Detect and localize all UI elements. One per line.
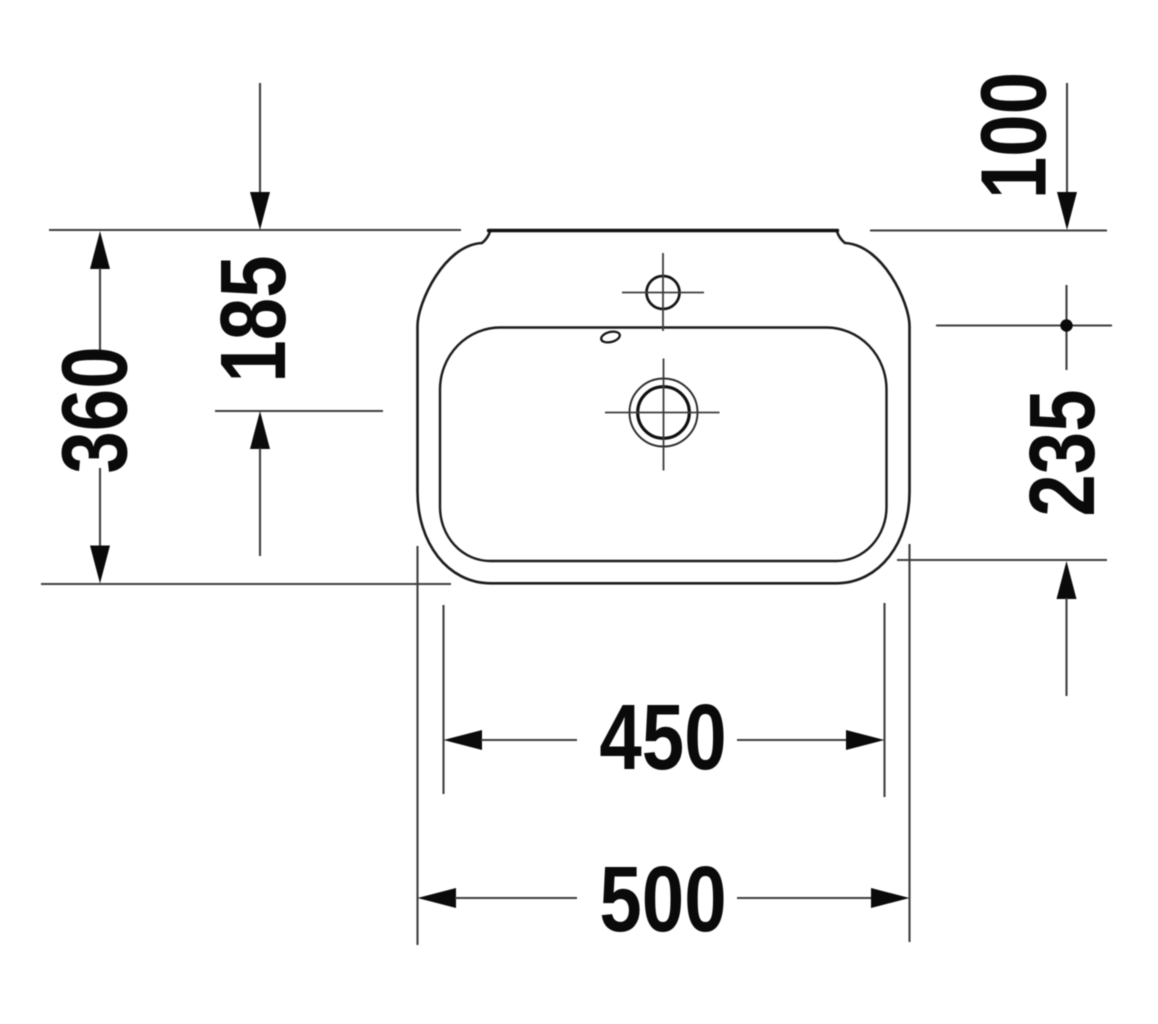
- svg-text:100: 100: [962, 72, 1066, 199]
- svg-text:360: 360: [43, 346, 147, 473]
- svg-text:185: 185: [202, 255, 306, 382]
- svg-text:500: 500: [599, 848, 726, 952]
- svg-text:450: 450: [599, 686, 726, 790]
- svg-text:235: 235: [1011, 389, 1115, 516]
